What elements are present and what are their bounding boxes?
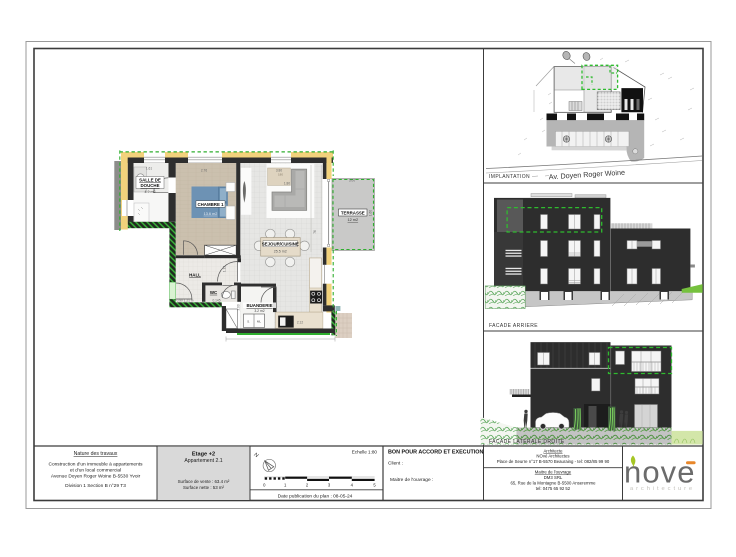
svg-text:Etage +2: Etage +2	[192, 452, 215, 458]
svg-text:Construction d'un immeuble à a: Construction d'un immeuble à appartement…	[49, 462, 144, 468]
svg-text:3.2 m2: 3.2 m2	[254, 309, 264, 313]
svg-text:FACADE LATERALE DROITE: FACADE LATERALE DROITE	[489, 439, 565, 445]
svg-text:DOUCHE: DOUCHE	[140, 183, 159, 188]
svg-text:25.5 m2: 25.5 m2	[274, 249, 287, 253]
svg-text:65, Rue de la Montagne B-5500: 65, Rue de la Montagne B-5500 Anseremme	[510, 481, 596, 486]
svg-text:0.145: 0.145	[213, 299, 221, 303]
svg-text:NOvé Architectes: NOvé Architectes	[536, 454, 569, 459]
svg-text:Surface de vente : 63.4 m²: Surface de vente : 63.4 m²	[178, 479, 230, 484]
svg-text:WC: WC	[210, 290, 218, 295]
svg-text:Avenue Doyen Roger Woine B-553: Avenue Doyen Roger Woine B-5530 Yvoir	[51, 474, 141, 480]
svg-text:BON POUR ACCORD ET EXECUTION: BON POUR ACCORD ET EXECUTION	[388, 450, 483, 456]
svg-text:Nature des travaux: Nature des travaux	[74, 451, 118, 457]
svg-text:HALL: HALL	[189, 273, 201, 278]
svg-text:Echelle 1:80: Echelle 1:80	[352, 450, 378, 455]
svg-text:tel: 0475 65 92 52: tel: 0475 65 92 52	[536, 486, 571, 491]
svg-text:1.61: 1.61	[146, 167, 152, 171]
svg-text:13.6 m2: 13.6 m2	[204, 212, 218, 216]
svg-text:Maitre de l'ouvrage :: Maitre de l'ouvrage :	[390, 477, 433, 483]
svg-text:4.9 m2: 4.9 m2	[145, 190, 156, 194]
svg-text:FACADE ARRIERE: FACADE ARRIERE	[489, 323, 538, 329]
svg-text:Date publication du plan : 08-: Date publication du plan : 08-05-24	[278, 493, 353, 499]
svg-text:architecture: architecture	[630, 486, 695, 492]
svg-text:Client :: Client :	[388, 461, 403, 467]
svg-text:BUANDERIE: BUANDERIE	[246, 303, 272, 308]
svg-text:Surface nette : 53 m²: Surface nette : 53 m²	[183, 485, 225, 490]
svg-text:S.: S.	[247, 320, 250, 324]
svg-text:CHAMBRE 1: CHAMBRE 1	[197, 202, 224, 207]
svg-text:SALLE DE: SALLE DE	[139, 178, 161, 183]
svg-text:0.90 1.21 m: 0.90 1.21 m	[177, 299, 194, 303]
svg-text:1.60: 1.60	[369, 210, 373, 216]
svg-text:TERRASSE: TERRASSE	[341, 211, 365, 216]
svg-text:2.76: 2.76	[201, 169, 207, 173]
svg-text:Appartement 2.1: Appartement 2.1	[184, 458, 222, 464]
svg-text:Place de Seurre n°17 B-5570 Be: Place de Seurre n°17 B-5570 Beauraing - …	[497, 459, 610, 464]
svg-text:SEJOUR/CUISINE: SEJOUR/CUISINE	[262, 242, 299, 247]
svg-text:3.80: 3.80	[276, 169, 282, 173]
svg-text:1.12: 1.12	[223, 266, 227, 272]
svg-text:1.80: 1.80	[284, 182, 290, 186]
svg-text:Maitre de l'ouvrage: Maitre de l'ouvrage	[535, 470, 572, 475]
svg-text:ML: ML	[257, 320, 261, 324]
svg-text:3.00: 3.00	[349, 179, 355, 183]
svg-text:180: 180	[278, 173, 283, 177]
svg-text:DM3 SRL: DM3 SRL	[544, 475, 563, 480]
svg-text:2.12: 2.12	[297, 321, 303, 325]
svg-text:76: 76	[313, 230, 317, 234]
svg-text:et d'un local commercial: et d'un local commercial	[70, 468, 121, 474]
svg-text:3.00: 3.00	[237, 304, 241, 310]
svg-text:IMPLANTATION: IMPLANTATION	[489, 174, 530, 180]
svg-text:Division 1 Section B n°29 T3: Division 1 Section B n°29 T3	[65, 483, 126, 489]
svg-text:12 m2: 12 m2	[348, 218, 359, 222]
